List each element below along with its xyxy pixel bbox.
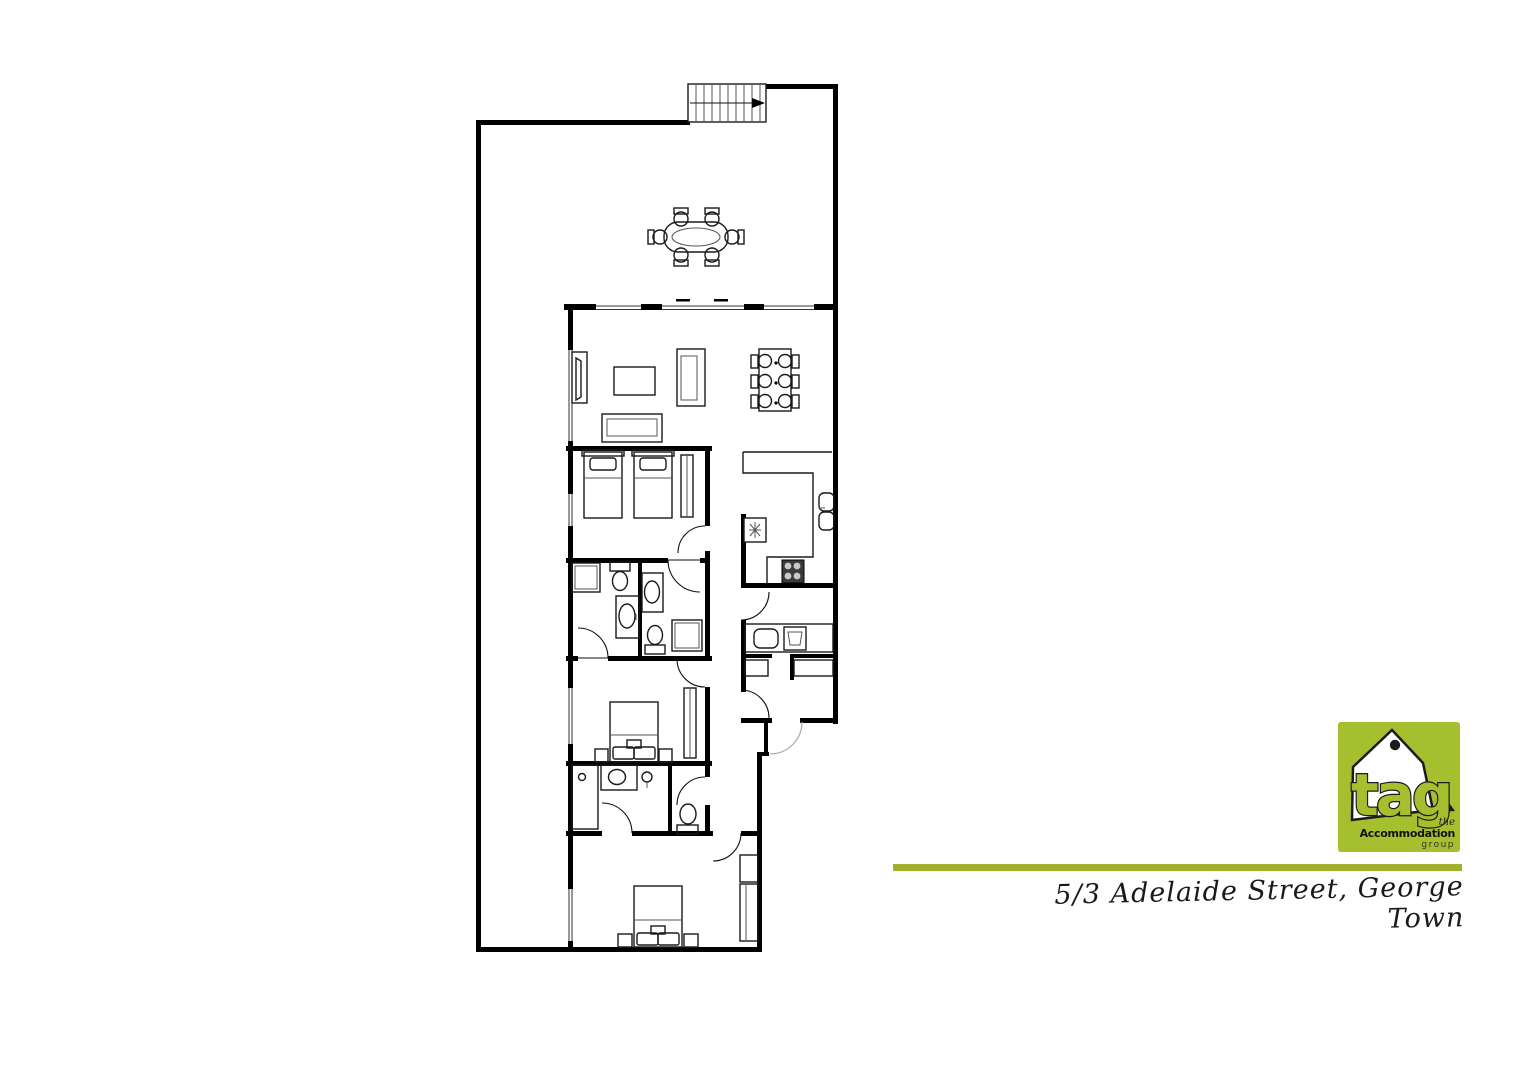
entry-door-swing: [770, 722, 802, 754]
vanity: [601, 765, 637, 790]
bathroom-ensuite-2: [642, 573, 702, 654]
bedside-table: [618, 934, 632, 947]
tag-hole-icon: [1390, 740, 1400, 750]
dining-table: [759, 349, 791, 411]
closet: [740, 884, 758, 941]
basin: [609, 770, 626, 785]
dining-set: [751, 349, 799, 411]
toilet: [613, 572, 628, 591]
property-address: 5/3 Adelaide Street, George Town: [1003, 871, 1464, 943]
storage-shelf: [794, 660, 833, 676]
toilet: [648, 626, 663, 645]
living-room: [572, 349, 705, 442]
rear-bathroom: [572, 765, 698, 834]
floor-waste: [642, 772, 652, 782]
toilet-cistern: [610, 562, 630, 571]
floor-plan-page: tag the Accommodation group 5/3 Adelaide…: [0, 0, 1527, 1080]
logo-tagline-group: group: [1421, 840, 1455, 850]
sofa: [602, 414, 662, 442]
washing-machine: [784, 627, 806, 650]
rear-bedroom: [618, 855, 758, 947]
shower: [572, 563, 600, 592]
outdoor-dining-set: [648, 208, 744, 266]
bedside-table: [684, 934, 698, 947]
twin-bedroom: [582, 450, 693, 518]
laundry-sink: [754, 629, 778, 648]
laundry: [745, 624, 833, 676]
storage-shelf: [745, 660, 768, 676]
toilet-cistern: [645, 645, 665, 654]
basin: [619, 604, 635, 628]
queen-bedroom: [595, 688, 696, 762]
bathroom-ensuite-1: [572, 562, 639, 638]
stove: [782, 560, 804, 583]
coffee-table: [614, 367, 655, 395]
kitchen: [743, 452, 834, 583]
entry-door-leaf: [764, 722, 768, 755]
closet: [740, 855, 758, 882]
bedside-table: [659, 749, 672, 762]
logo-tagline-accommodation: Accommodation: [1360, 827, 1455, 840]
tag-logo: tag the Accommodation group: [1338, 722, 1460, 852]
interior-walls: [564, 299, 838, 951]
bedside-table: [595, 749, 608, 762]
divider-line: [893, 864, 1462, 871]
wc-toilet: [680, 804, 696, 824]
stairs: [688, 84, 766, 122]
shower: [672, 620, 702, 651]
logo-wordmark: tag: [1351, 761, 1450, 829]
basin: [645, 581, 660, 603]
